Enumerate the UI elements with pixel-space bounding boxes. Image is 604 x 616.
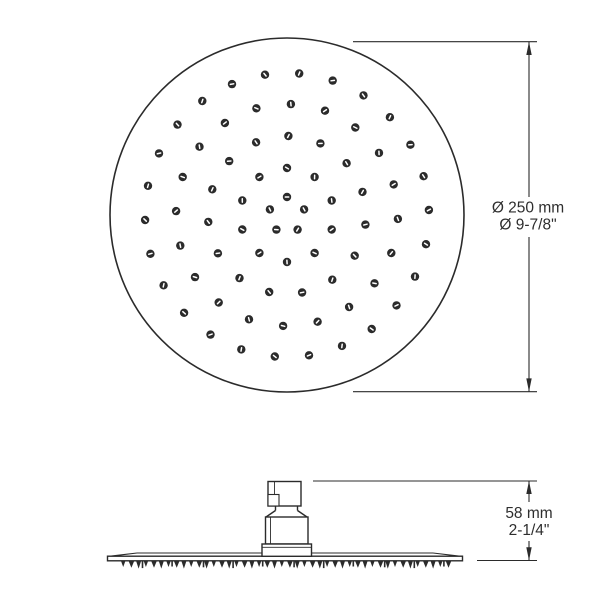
nozzle-dot: [235, 274, 243, 282]
nozzle-dot: [266, 205, 274, 213]
nozzle-dot: [204, 218, 212, 226]
nozzle-tooth: [203, 561, 205, 567]
neck-flare-left: [266, 511, 276, 518]
nozzle-tooth: [227, 561, 232, 569]
nozzle-tooth: [302, 561, 306, 567]
nozzle-tooth: [144, 561, 148, 567]
nozzle-dot: [293, 225, 301, 233]
nozzle-dot: [252, 138, 260, 146]
nozzle-tooth: [159, 561, 164, 569]
nozzle-dot: [295, 69, 303, 77]
nozzle-dot: [284, 132, 292, 140]
nozzle-dot: [215, 298, 223, 306]
nozzle-tooth: [446, 561, 452, 568]
nozzle-tooth: [212, 561, 216, 567]
nozzle-tooth: [431, 561, 436, 569]
height-label-imperial: 2-1/4": [509, 522, 550, 539]
nozzle-tooth: [121, 561, 125, 567]
nozzle-dot: [265, 288, 273, 296]
nozzle-tooth: [340, 561, 345, 569]
nozzle-dot: [195, 143, 203, 151]
nozzle-dot: [316, 139, 324, 147]
nozzle-dot: [370, 279, 378, 287]
nozzle-dot: [180, 309, 188, 317]
nozzle-tooth: [443, 561, 445, 567]
nozzle-dot: [310, 173, 318, 181]
nozzle-tooth: [355, 561, 361, 568]
nozzle-tooth: [151, 561, 157, 568]
nozzle-tooth: [370, 561, 374, 567]
showerhead-side-view: [108, 482, 463, 569]
nozzle-dot: [300, 205, 308, 213]
nozzle-dot: [386, 113, 394, 121]
nozzle-dot: [141, 216, 149, 224]
nozzle-dot: [206, 330, 214, 338]
nozzle-tooth: [293, 561, 295, 567]
neck-flare-right: [298, 511, 308, 518]
nozzle-dot: [228, 80, 236, 88]
nozzle-dot: [313, 318, 321, 326]
nozzle-dot: [375, 149, 383, 157]
nozzle-dot: [351, 123, 359, 131]
nozzle-tooth: [414, 561, 416, 568]
nozzle-dot: [406, 141, 414, 149]
connector-assembly: [262, 482, 312, 557]
spray-face-circle: [110, 38, 464, 392]
nozzle-tooth: [384, 561, 386, 567]
nozzle-tooth: [348, 561, 352, 567]
nozzle-dot: [328, 225, 336, 233]
nozzle-dot: [387, 249, 395, 257]
nozzle-dot: [159, 281, 167, 289]
nozzle-dot: [422, 240, 430, 248]
nozzle-dot: [279, 322, 287, 330]
nozzle-dot: [173, 120, 181, 128]
nozzle-tooth: [232, 561, 234, 568]
nozzle-dot: [172, 207, 180, 215]
nozzle-tooth: [325, 561, 329, 567]
nozzle-tooth: [174, 561, 180, 568]
nozzle-dot: [283, 193, 291, 201]
nozzle-dot: [176, 241, 184, 249]
nozzle-tooth: [295, 561, 300, 569]
nozzle-tooth: [234, 561, 238, 567]
nozzle-dot: [392, 301, 400, 309]
nozzle-dot: [221, 119, 229, 127]
nozzle-dot: [198, 97, 206, 105]
nozzle-tooth: [363, 561, 368, 569]
nozzle-dot: [351, 252, 359, 260]
nozzle-tooth: [142, 561, 144, 568]
showerhead-spec-drawing: Ø 250 mm Ø 9-7/8": [0, 0, 604, 616]
nozzle-dot: [155, 149, 163, 157]
connector-notch: [268, 495, 279, 507]
nozzle-dot: [252, 104, 260, 112]
nozzle-dot: [328, 276, 336, 284]
nozzle-dot: [238, 225, 246, 233]
nozzle-dot: [271, 352, 279, 360]
nozzle-dot: [255, 249, 263, 257]
nozzle-tooth: [438, 561, 442, 567]
nozzle-dot: [321, 107, 329, 115]
nozzle-tooth: [423, 561, 429, 568]
nozzle-dot: [358, 188, 366, 196]
nozzle-dot: [238, 196, 246, 204]
nozzle-dot: [191, 273, 199, 281]
arrow-up-icon: [526, 42, 531, 55]
nozzle-dot: [208, 185, 216, 193]
nozzle-dot: [298, 288, 306, 296]
nozzle-tooth: [249, 561, 254, 569]
nozzle-dot: [272, 225, 280, 233]
nozzle-dot: [287, 100, 295, 108]
nozzle-dot: [368, 325, 376, 333]
nozzle-tooth: [219, 561, 225, 568]
nozzle-dot: [342, 159, 350, 167]
nozzle-dot: [214, 249, 222, 257]
nozzle-dot: [425, 206, 433, 214]
nozzle-dot: [345, 303, 353, 311]
nozzle-tooth: [189, 561, 193, 567]
nozzle-dot: [305, 351, 313, 359]
showerhead-top-view: [110, 38, 464, 392]
nozzle-tooth: [197, 561, 203, 568]
nozzle-dot: [359, 91, 367, 99]
nozzle-dot: [338, 342, 346, 350]
arrow-down-icon: [526, 547, 531, 560]
nozzle-tooth: [323, 561, 325, 568]
nozzle-dot: [144, 182, 152, 190]
diameter-label-metric: Ø 250 mm: [492, 200, 564, 217]
nozzle-tooth: [416, 561, 420, 567]
nozzle-tooth: [287, 561, 293, 568]
nozzle-dot: [245, 315, 253, 323]
nozzle-dot: [179, 173, 187, 181]
nozzle-tooth: [242, 561, 248, 568]
nozzle-tooth: [171, 561, 173, 567]
nozzle-tooth: [129, 561, 135, 568]
nozzle-dot: [225, 157, 233, 165]
nozzle-dot: [283, 164, 291, 172]
nozzle-tooth: [400, 561, 406, 568]
nozzle-dot: [261, 71, 269, 79]
nozzle-tooth: [353, 561, 355, 567]
nozzle-tooth: [136, 561, 141, 569]
nozzle-dot: [328, 196, 336, 204]
arrow-down-icon: [526, 378, 531, 391]
technical-drawing-canvas: Ø 250 mm Ø 9-7/8": [0, 0, 604, 616]
nozzle-dot: [329, 76, 337, 84]
nozzle-tooth: [280, 561, 284, 567]
nozzle-tooth: [257, 561, 261, 567]
diameter-label-imperial: Ø 9-7/8": [499, 217, 556, 234]
connector-body: [266, 517, 309, 544]
nozzle-dot: [419, 172, 427, 180]
nozzle-tooth: [317, 561, 322, 569]
nozzle-dot: [146, 250, 154, 258]
nozzle-dot: [283, 258, 291, 266]
nozzle-tooth: [272, 561, 277, 569]
height-label-metric: 58 mm: [505, 505, 552, 522]
nozzle-dot: [390, 180, 398, 188]
height-dimension: 58 mm 2-1/4": [313, 481, 553, 561]
nozzle-dot: [237, 345, 245, 353]
nozzle-tooth: [166, 561, 170, 567]
nozzle-tooth: [204, 561, 209, 569]
nozzle-tooth: [332, 561, 338, 568]
nozzle-tooth: [262, 561, 264, 567]
nozzle-dot: [361, 220, 369, 228]
nozzle-tooth: [393, 561, 397, 567]
nozzle-dot: [255, 173, 263, 181]
nozzle-tooth: [385, 561, 390, 569]
nozzle-tooth: [408, 561, 413, 569]
nozzle-teeth-band: [121, 561, 451, 569]
nozzle-tooth: [378, 561, 384, 568]
connector-base-collar: [262, 544, 312, 556]
nozzle-tooth: [310, 561, 316, 568]
nozzle-tooth: [181, 561, 186, 569]
nozzle-dot: [394, 215, 402, 223]
nozzle-tooth: [265, 561, 271, 568]
nozzle-dot: [310, 249, 318, 257]
arrow-up-icon: [526, 481, 531, 494]
nozzle-dot: [411, 272, 419, 280]
